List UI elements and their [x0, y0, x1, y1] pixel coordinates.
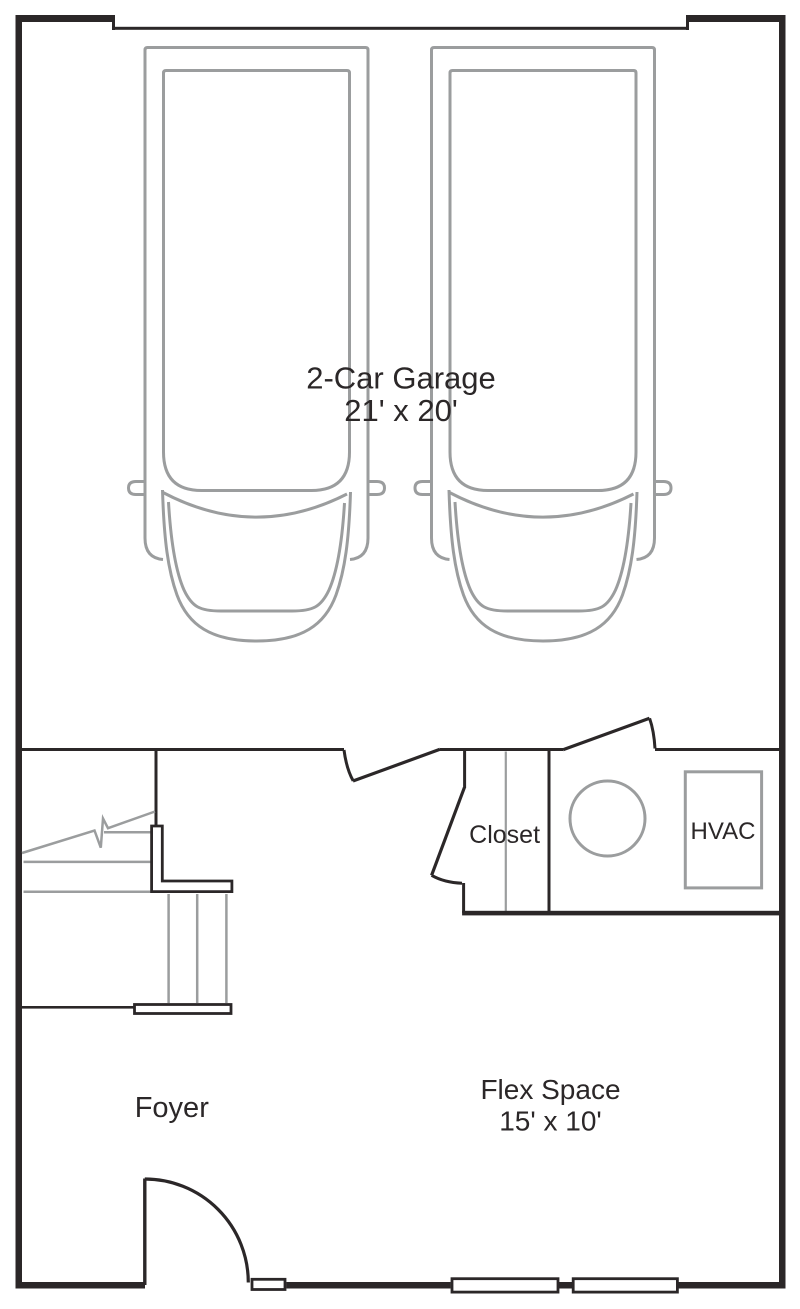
svg-text:2-Car Garage: 2-Car Garage: [306, 361, 496, 396]
svg-text:HVAC: HVAC: [691, 818, 756, 845]
svg-text:15' x 10': 15' x 10': [499, 1105, 602, 1136]
svg-text:Foyer: Foyer: [135, 1092, 209, 1124]
svg-text:21' x 20': 21' x 20': [344, 393, 458, 428]
svg-text:Closet: Closet: [469, 821, 540, 849]
svg-text:Flex Space: Flex Space: [480, 1074, 620, 1105]
